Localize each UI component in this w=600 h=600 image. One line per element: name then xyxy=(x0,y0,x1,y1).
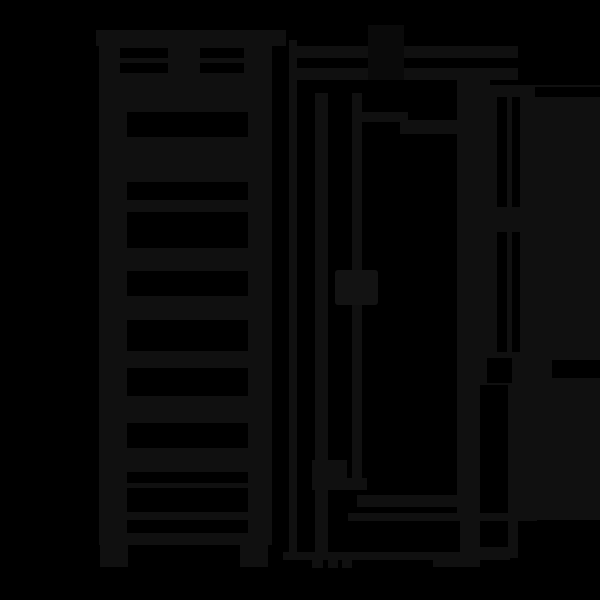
side-foot-tick xyxy=(342,560,352,568)
front-foot-left xyxy=(100,543,128,567)
rung-gap xyxy=(127,520,248,533)
rung-gap xyxy=(127,368,248,396)
side-bottom-band xyxy=(348,513,537,521)
vent-slot xyxy=(200,48,244,58)
front-foot-right xyxy=(240,543,268,567)
rung-gap xyxy=(127,112,248,137)
wall-notch xyxy=(552,360,600,378)
front-view xyxy=(96,30,286,567)
vent-slot xyxy=(200,63,244,73)
valve-knob xyxy=(335,270,378,305)
rung-gap xyxy=(127,320,248,351)
side-foot-tick xyxy=(328,560,338,568)
side-foot-block xyxy=(433,556,463,567)
technical-drawing xyxy=(0,0,600,600)
front-top-cap xyxy=(96,30,286,46)
rung-gap xyxy=(127,271,248,296)
mount-channel xyxy=(480,385,508,520)
rung-gap xyxy=(127,472,248,483)
side-bottom-block xyxy=(312,460,347,487)
side-top-cap xyxy=(368,25,404,80)
wall-shadow-line xyxy=(535,87,600,97)
rung-gap xyxy=(127,423,248,448)
vent-slot xyxy=(120,48,168,58)
rung-gap xyxy=(127,212,248,248)
vent-slot xyxy=(120,63,168,73)
mount-line xyxy=(497,232,507,352)
rung-gap xyxy=(127,182,248,200)
rear-leg xyxy=(460,520,480,567)
side-front-edge xyxy=(289,40,297,553)
mount-line xyxy=(512,232,520,352)
screenshot-canvas xyxy=(0,0,600,600)
side-bottom-band xyxy=(357,495,460,507)
side-top-rail xyxy=(292,68,518,80)
bracket-cutout xyxy=(487,358,512,383)
side-step-rail xyxy=(400,120,462,134)
side-foot-tick xyxy=(312,560,323,568)
mount-line xyxy=(512,97,520,207)
mount-line xyxy=(497,97,507,207)
side-top-rail xyxy=(292,46,518,58)
rung-gap xyxy=(127,488,248,512)
rear-leg-bridge xyxy=(480,547,510,558)
side-bottom-band xyxy=(312,483,367,490)
